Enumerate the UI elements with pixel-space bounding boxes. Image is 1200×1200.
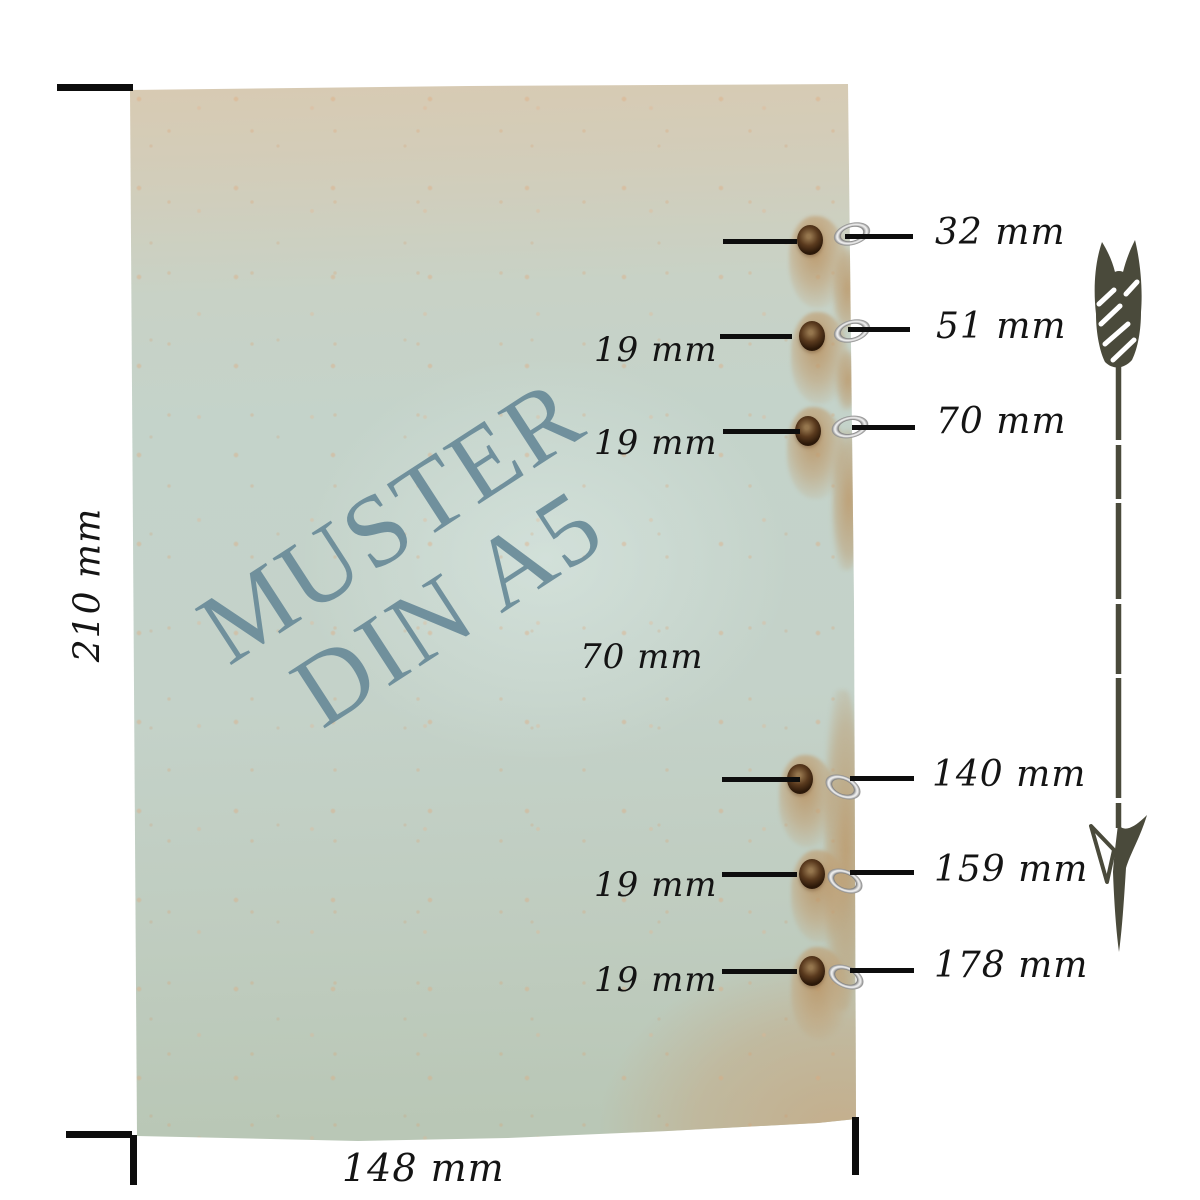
leader-line [848, 327, 910, 332]
spacing-label: 19 mm [594, 423, 718, 463]
height-dimension-label: 210 mm [68, 508, 109, 662]
hole-distance-label: 32 mm [935, 212, 1066, 253]
width-dimension-label: 148 mm [342, 1146, 505, 1190]
punch-hole [799, 859, 825, 889]
leader-line [723, 429, 800, 434]
spacing-label: 19 mm [594, 330, 718, 370]
spacing-label: 19 mm [594, 865, 718, 905]
dimension-tick [66, 1131, 132, 1138]
diagram-canvas: MUSTER DIN A5 19 mm 19 mm 70 mm 19 mm 19… [0, 0, 1200, 1200]
hole-distance-label: 159 mm [934, 849, 1088, 890]
leader-line [845, 234, 913, 239]
hole-distance-label: 140 mm [932, 754, 1086, 795]
punch-hole [799, 321, 825, 351]
leader-line [722, 872, 797, 877]
leader-line [720, 334, 792, 339]
spacing-label: 19 mm [594, 960, 718, 1000]
leader-line [850, 776, 914, 781]
punch-hole [799, 956, 825, 986]
leader-line [850, 870, 914, 875]
leader-line [722, 969, 797, 974]
hole-distance-label: 51 mm [936, 306, 1067, 347]
dimension-tick [852, 1117, 859, 1175]
leader-line [850, 968, 914, 973]
dimension-tick [57, 84, 133, 91]
leader-line [852, 425, 915, 430]
punch-hole [797, 225, 823, 255]
hole-distance-label: 178 mm [934, 945, 1088, 986]
dimension-tick [130, 1135, 137, 1185]
leader-line [723, 239, 797, 244]
hole-distance-label: 70 mm [936, 401, 1067, 442]
spacing-label: 70 mm [580, 637, 704, 677]
leader-line [722, 777, 800, 782]
down-arrow-icon [1078, 236, 1158, 956]
